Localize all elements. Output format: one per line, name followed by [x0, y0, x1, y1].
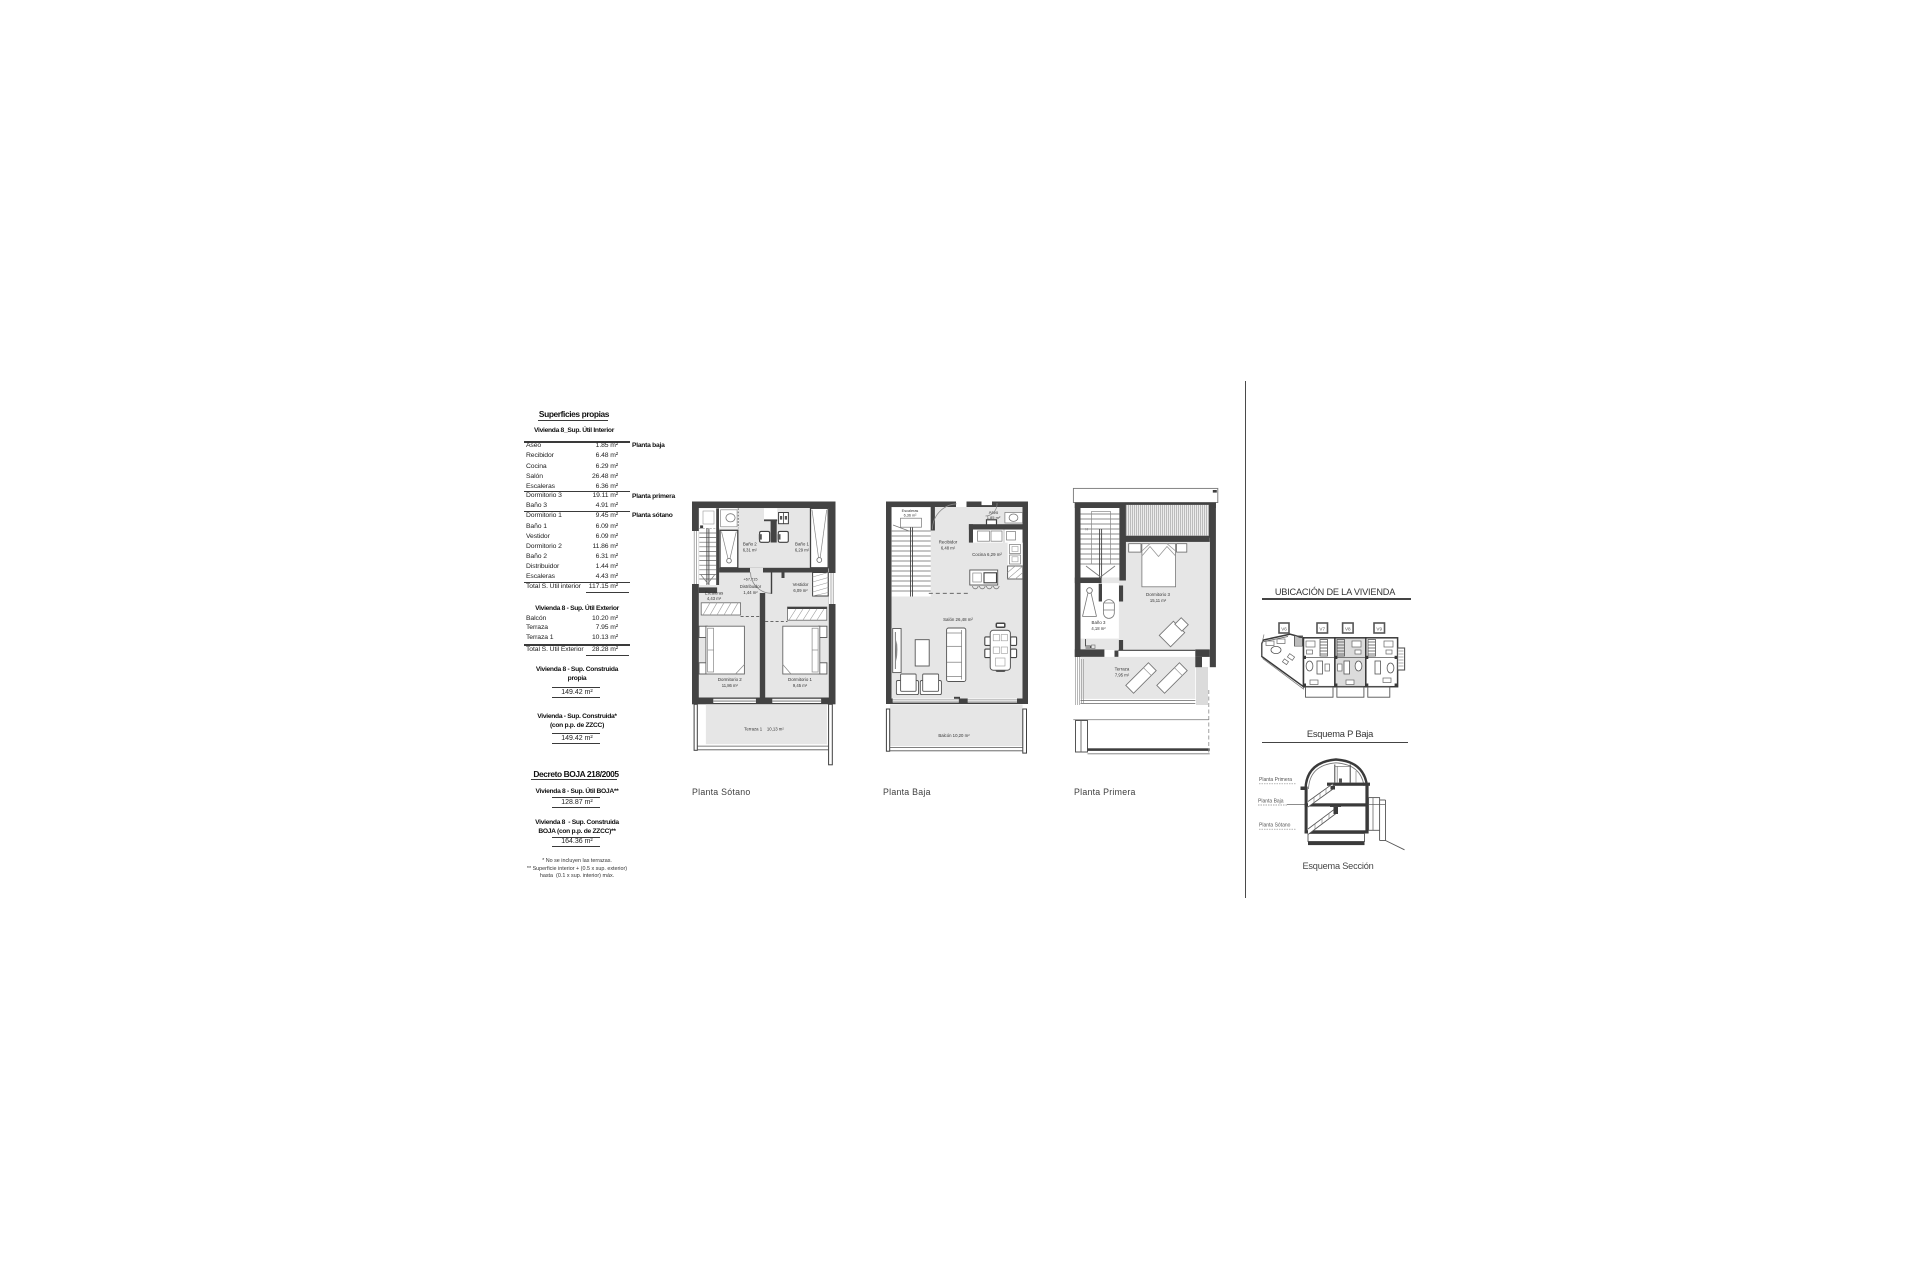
svg-text:4,43 m²: 4,43 m² [707, 596, 722, 601]
svg-text:11,86 m²: 11,86 m² [722, 683, 739, 688]
svg-text:Terraza 1 10,13 m²: Terraza 1 10,13 m² [744, 727, 784, 732]
svg-text:Escaleras: Escaleras [902, 509, 919, 513]
svg-text:6,29 m²: 6,29 m² [795, 547, 810, 552]
svg-text:6,36 m²: 6,36 m² [904, 513, 918, 517]
svg-text:+67,715: +67,715 [743, 577, 757, 582]
svg-text:V7: V7 [1319, 627, 1325, 632]
svg-text:Baño 3: Baño 3 [1092, 620, 1106, 625]
svg-text:Dormitorio 1: Dormitorio 1 [788, 677, 812, 682]
svg-text:Salón 26,48 m²: Salón 26,48 m² [943, 617, 973, 622]
svg-text:1,44 m²: 1,44 m² [743, 590, 758, 595]
svg-text:15,11 m²: 15,11 m² [1150, 598, 1167, 603]
svg-text:Cocina 6,29 m²: Cocina 6,29 m² [972, 552, 1002, 557]
svg-text:V6: V6 [1281, 627, 1287, 632]
svg-text:Planta Baja: Planta Baja [1258, 799, 1284, 805]
svg-text:Baño 2: Baño 2 [743, 542, 757, 547]
svg-text:6,09 m²: 6,09 m² [793, 588, 808, 593]
svg-text:V9: V9 [1376, 627, 1382, 632]
svg-text:9,45 m²: 9,45 m² [793, 683, 808, 688]
svg-text:Baño 1: Baño 1 [795, 542, 809, 547]
svg-text:Distribuidor: Distribuidor [740, 584, 762, 589]
svg-text:Planta Sótano: Planta Sótano [1259, 823, 1291, 829]
svg-text:Recibidor: Recibidor [939, 540, 958, 545]
svg-text:6,48 m²: 6,48 m² [941, 546, 956, 551]
svg-text:Dormitorio 2: Dormitorio 2 [718, 677, 742, 682]
svg-text:7,95 m²: 7,95 m² [1115, 672, 1130, 677]
svg-text:4,18 m²: 4,18 m² [1091, 626, 1106, 631]
svg-text:Vestidor: Vestidor [793, 582, 809, 587]
svg-text:Dormitorio 3: Dormitorio 3 [1146, 592, 1170, 597]
svg-text:Planta Primera: Planta Primera [1259, 777, 1292, 783]
svg-text:Terraza: Terraza [1115, 666, 1130, 671]
svg-text:6,31 m²: 6,31 m² [743, 547, 758, 552]
svg-text:Balcón 10,20 m²: Balcón 10,20 m² [938, 733, 970, 738]
svg-text:V8: V8 [1345, 627, 1351, 632]
